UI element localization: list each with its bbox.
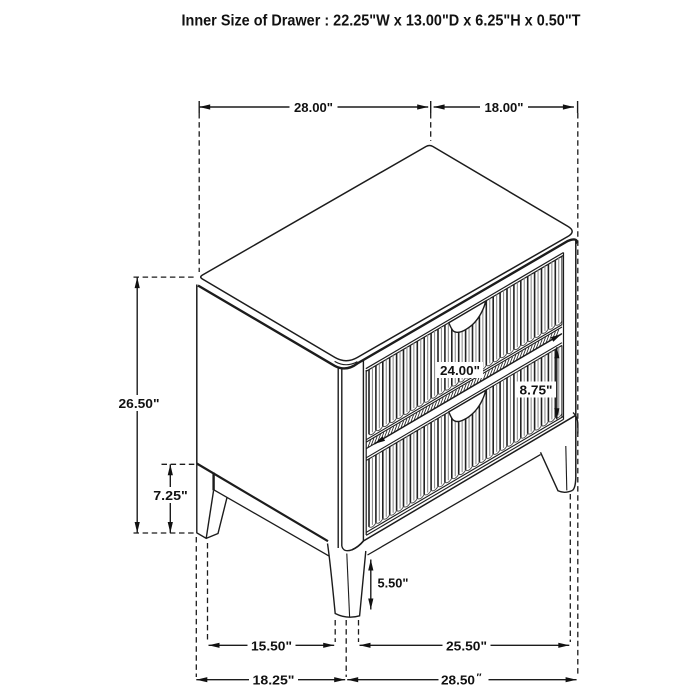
svg-text:″: ″: [477, 672, 482, 684]
svg-text:Inner Size of Drawer : 22.25"W: Inner Size of Drawer : 22.25"W x 13.00"D…: [182, 13, 581, 30]
svg-text:18.00": 18.00": [485, 100, 524, 115]
svg-text:28.00": 28.00": [294, 100, 333, 115]
svg-text:5.50": 5.50": [378, 576, 409, 591]
svg-text:7.25": 7.25": [153, 488, 188, 503]
svg-text:25.50": 25.50": [446, 638, 487, 653]
svg-text:15.50": 15.50": [251, 638, 292, 653]
svg-text:28.50: 28.50: [441, 673, 475, 688]
svg-text:18.25": 18.25": [253, 673, 295, 688]
svg-text:24.00": 24.00": [440, 363, 480, 378]
svg-text:26.50": 26.50": [119, 396, 160, 411]
svg-text:8.75": 8.75": [520, 383, 553, 398]
